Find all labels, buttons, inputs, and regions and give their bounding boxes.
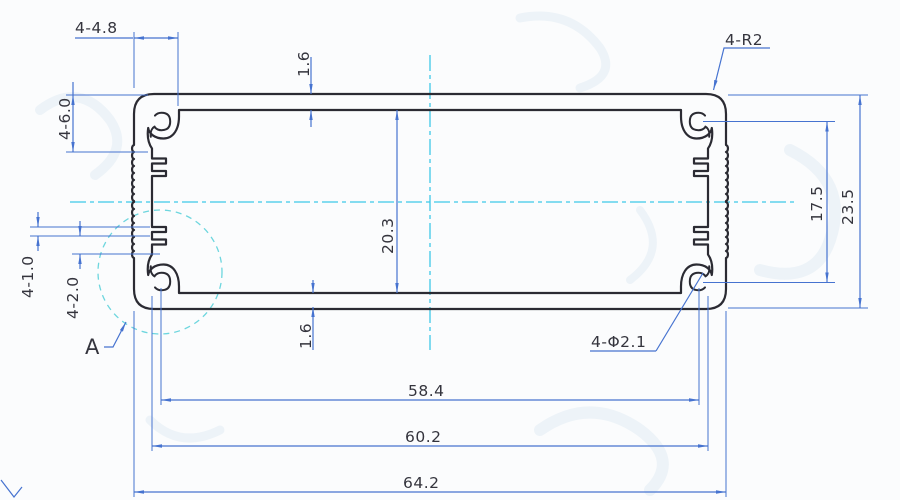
centerlines — [70, 55, 795, 350]
dimension-labels: 4-4.8 4-6.0 1.6 20.3 1.6 4-1.0 4-2.0 17.… — [19, 19, 857, 492]
leader-corner-radius — [714, 48, 771, 90]
dim-overall-height-label: 23.5 — [839, 188, 857, 225]
dim-slot-width-label: 4-2.0 — [64, 276, 82, 319]
profile-quadrant-top-right — [430, 94, 728, 202]
dim-wall-top-label: 1.6 — [295, 51, 313, 77]
dim-inner-width-label: 60.2 — [405, 428, 442, 446]
profile-quadrant-top-left — [132, 94, 430, 202]
dim-boss-depth-label: 4-6.0 — [56, 97, 74, 140]
engineering-drawing: 4-4.8 4-6.0 1.6 20.3 1.6 4-1.0 4-2.0 17.… — [0, 0, 900, 500]
dim-overall-width-label: 64.2 — [403, 474, 440, 492]
dim-hole-pitch-horizontal-label: 58.4 — [408, 382, 445, 400]
leader-detail-A — [104, 322, 126, 347]
watermark — [40, 16, 835, 490]
profile-quadrant-bottom-right — [430, 202, 728, 310]
quadrant-template — [132, 94, 430, 202]
dim-slot-offset-top-label: 4-4.8 — [75, 19, 118, 37]
dim-wall-bottom-label: 1.6 — [297, 323, 315, 349]
dim-rib-thickness-label: 4-1.0 — [19, 255, 37, 298]
sheet-corner-mark — [1, 480, 22, 497]
dim-hole-pitch-vertical-label: 17.5 — [808, 185, 826, 222]
screw-boss-hole — [155, 113, 170, 130]
drawing-sheet: 4-4.8 4-6.0 1.6 20.3 1.6 4-1.0 4-2.0 17.… — [0, 0, 900, 500]
dim-inner-height-label: 20.3 — [379, 217, 397, 254]
inner-cavity — [148, 110, 430, 202]
detail-marker-label: A — [85, 335, 100, 359]
dim-screw-hole-label: 4-Φ2.1 — [591, 333, 646, 351]
dim-corner-radius-label: 4-R2 — [725, 31, 763, 49]
